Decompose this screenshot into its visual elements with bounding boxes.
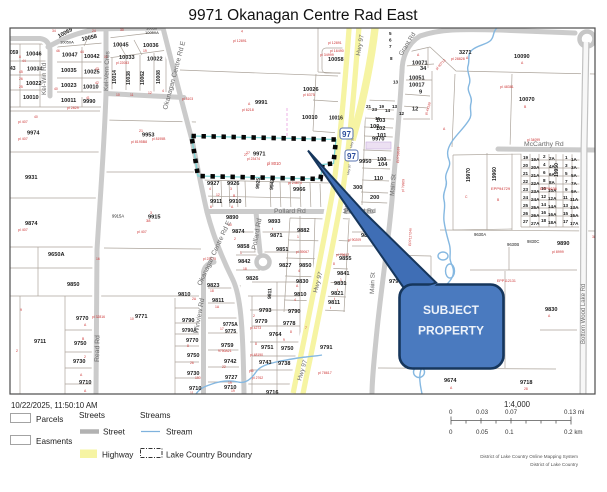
svg-text:10035: 10035 xyxy=(61,68,77,74)
svg-text:10050A: 10050A xyxy=(145,30,159,35)
svg-text:Highway: Highway xyxy=(102,451,134,460)
svg-text:t: t xyxy=(337,288,338,292)
svg-text:10: 10 xyxy=(116,93,120,97)
svg-text:0.2 km: 0.2 km xyxy=(564,429,583,436)
svg-text:7: 7 xyxy=(305,326,307,330)
svg-text:2: 2 xyxy=(84,355,86,359)
svg-text:18A: 18A xyxy=(548,220,557,225)
svg-text:8: 8 xyxy=(187,344,189,348)
svg-text:10010: 10010 xyxy=(83,85,99,91)
svg-text:SUBJECT: SUBJECT xyxy=(423,303,480,317)
svg-text:pl 2829: pl 2829 xyxy=(67,106,79,110)
svg-text:Streams: Streams xyxy=(140,411,170,420)
svg-text:40: 40 xyxy=(54,87,58,91)
svg-text:Kel-Win Rd: Kel-Win Rd xyxy=(41,62,48,95)
svg-text:21A: 21A xyxy=(531,173,540,178)
svg-text:20: 20 xyxy=(523,163,529,168)
svg-text:3: 3 xyxy=(230,187,232,191)
svg-text:26: 26 xyxy=(523,211,529,216)
svg-text:42: 42 xyxy=(95,81,99,85)
svg-text:pl 48190: pl 48190 xyxy=(250,353,263,357)
svg-text:10: 10 xyxy=(130,317,134,321)
svg-text:20A: 20A xyxy=(531,165,540,170)
svg-text:EPP94729: EPP94729 xyxy=(491,186,511,191)
svg-text:pl 407: pl 407 xyxy=(18,228,28,232)
svg-text:pl 6375: pl 6375 xyxy=(303,93,315,97)
svg-text:9971 Okanagan Centre Rad East: 9971 Okanagan Centre Rad East xyxy=(188,7,418,24)
svg-text:23: 23 xyxy=(523,187,529,192)
svg-text:5: 5 xyxy=(565,171,568,176)
svg-text:24: 24 xyxy=(92,29,96,33)
svg-text:12: 12 xyxy=(148,91,152,95)
svg-text:4: 4 xyxy=(162,89,164,93)
svg-text:pl 23474: pl 23474 xyxy=(247,157,260,161)
svg-text:pl 407: pl 407 xyxy=(18,137,28,141)
svg-text:28: 28 xyxy=(524,387,528,391)
svg-text:44: 44 xyxy=(80,50,84,54)
svg-text:pl 407: pl 407 xyxy=(18,120,28,124)
svg-text:9811: 9811 xyxy=(212,298,224,304)
svg-text:25A: 25A xyxy=(531,205,540,210)
svg-text:45: 45 xyxy=(19,70,23,74)
svg-text:19: 19 xyxy=(228,381,232,385)
svg-text:9950: 9950 xyxy=(359,159,371,165)
svg-text:22: 22 xyxy=(523,179,529,184)
svg-text:10047: 10047 xyxy=(62,53,78,59)
svg-text:8: 8 xyxy=(290,330,292,334)
svg-text:pl 34999: pl 34999 xyxy=(320,53,334,57)
svg-text:10010: 10010 xyxy=(302,115,318,121)
svg-text:190: 190 xyxy=(195,376,201,380)
svg-text:41: 41 xyxy=(86,96,90,100)
svg-text:25: 25 xyxy=(19,85,23,89)
svg-text:10010: 10010 xyxy=(23,95,39,101)
svg-text:pl 407: pl 407 xyxy=(137,230,147,234)
svg-text:21: 21 xyxy=(523,171,529,176)
svg-text:19: 19 xyxy=(143,49,147,53)
svg-text:9966: 9966 xyxy=(293,187,305,193)
svg-text:District of Lake Country: District of Lake Country xyxy=(530,462,578,467)
svg-text:9850: 9850 xyxy=(67,282,79,288)
svg-text:10008: 10008 xyxy=(156,70,162,84)
svg-text:2: 2 xyxy=(253,314,255,318)
svg-text:pl 28828: pl 28828 xyxy=(451,57,465,61)
svg-text:9710: 9710 xyxy=(79,380,91,386)
svg-text:15A: 15A xyxy=(570,213,579,218)
svg-text:pl 79617: pl 79617 xyxy=(336,253,349,257)
svg-text:9790: 9790 xyxy=(182,318,194,324)
svg-text:23A: 23A xyxy=(531,189,540,194)
svg-text:9A: 9A xyxy=(571,189,578,194)
svg-text:pl 2762: pl 2762 xyxy=(252,376,263,380)
svg-text:104: 104 xyxy=(378,162,388,168)
svg-text:43: 43 xyxy=(10,66,16,72)
svg-text:17A: 17A xyxy=(570,221,579,226)
svg-text:9882: 9882 xyxy=(297,228,309,234)
svg-text:14A: 14A xyxy=(548,204,557,209)
svg-text:7: 7 xyxy=(389,44,392,49)
svg-text:9942: 9942 xyxy=(269,178,276,190)
svg-text:pl 78617: pl 78617 xyxy=(318,371,332,375)
svg-text:10016: 10016 xyxy=(329,116,343,122)
svg-text:12: 12 xyxy=(412,107,418,113)
svg-text:16: 16 xyxy=(96,257,100,261)
svg-text:10050A: 10050A xyxy=(60,40,74,45)
svg-text:9779: 9779 xyxy=(255,319,267,325)
svg-text:9730: 9730 xyxy=(73,359,85,365)
svg-text:11: 11 xyxy=(130,93,134,97)
svg-text:4: 4 xyxy=(294,298,296,302)
svg-text:10/22/2025, 11:50:10 AM: 10/22/2025, 11:50:10 AM xyxy=(11,401,98,410)
svg-text:EPP59539: EPP59539 xyxy=(396,147,401,163)
svg-text:1:4,000: 1:4,000 xyxy=(504,400,531,409)
svg-text:2: 2 xyxy=(16,349,18,353)
svg-text:pl 79909: pl 79909 xyxy=(401,179,405,192)
svg-text:1: 1 xyxy=(565,155,568,160)
svg-text:2: 2 xyxy=(543,154,546,159)
svg-text:22A: 22A xyxy=(531,181,540,186)
svg-text:43: 43 xyxy=(95,67,99,71)
svg-text:Kel-Vern Cres: Kel-Vern Cres xyxy=(103,51,111,91)
svg-text:9674: 9674 xyxy=(444,378,457,384)
svg-text:9827: 9827 xyxy=(279,263,291,269)
svg-text:Bottom Wood Lake Rd: Bottom Wood Lake Rd xyxy=(581,284,587,344)
svg-text:9874: 9874 xyxy=(232,229,245,235)
svg-text:10011: 10011 xyxy=(61,98,76,104)
svg-text:9931: 9931 xyxy=(25,175,37,181)
svg-text:34: 34 xyxy=(52,29,56,33)
svg-text:pl 8103: pl 8103 xyxy=(182,97,193,101)
svg-text:4: 4 xyxy=(298,269,300,273)
svg-text:pl 8999: pl 8999 xyxy=(552,250,564,254)
svg-text:t: t xyxy=(334,297,335,301)
svg-text:200: 200 xyxy=(370,195,379,201)
svg-text:26: 26 xyxy=(19,77,23,81)
svg-text:16A: 16A xyxy=(548,212,557,217)
svg-text:Lake Country Boundary: Lake Country Boundary xyxy=(166,451,253,460)
svg-text:26A: 26A xyxy=(531,213,540,218)
svg-text:9842: 9842 xyxy=(238,259,250,265)
svg-text:9970: 9970 xyxy=(372,137,384,143)
svg-text:Street: Street xyxy=(103,428,126,437)
svg-text:16: 16 xyxy=(541,210,547,215)
svg-text:9926: 9926 xyxy=(227,181,239,187)
svg-text:3: 3 xyxy=(565,163,568,168)
svg-text:7: 7 xyxy=(565,179,568,184)
svg-text:9630B: 9630B xyxy=(507,242,519,247)
svg-text:10090: 10090 xyxy=(514,54,530,60)
svg-text:9841: 9841 xyxy=(337,271,349,277)
svg-text:19A: 19A xyxy=(531,157,540,162)
svg-text:9915A: 9915A xyxy=(112,214,124,219)
svg-text:4: 4 xyxy=(543,162,546,167)
svg-text:17: 17 xyxy=(563,219,569,224)
svg-text:27A: 27A xyxy=(531,221,540,226)
svg-text:46: 46 xyxy=(56,49,60,53)
svg-text:13: 13 xyxy=(392,104,398,109)
svg-text:pl 8195B: pl 8195B xyxy=(152,137,166,141)
svg-text:9991: 9991 xyxy=(255,100,267,106)
svg-text:pl 39067: pl 39067 xyxy=(296,250,309,254)
svg-text:10022: 10022 xyxy=(26,81,42,87)
svg-text:19970: 19970 xyxy=(466,168,472,182)
svg-text:0.03: 0.03 xyxy=(476,409,489,416)
svg-text:Easments: Easments xyxy=(36,437,72,446)
svg-text:9830C: 9830C xyxy=(527,239,539,244)
svg-text:pl 22083: pl 22083 xyxy=(116,61,129,65)
svg-text:9630A: 9630A xyxy=(474,232,486,237)
svg-text:Streets: Streets xyxy=(79,411,105,420)
svg-text:10070: 10070 xyxy=(519,97,535,103)
svg-text:9743: 9743 xyxy=(259,360,271,366)
svg-text:19: 19 xyxy=(523,155,529,160)
svg-text:9890: 9890 xyxy=(226,215,238,221)
svg-text:McCarthy Rd: McCarthy Rd xyxy=(524,141,564,148)
svg-text:9871: 9871 xyxy=(270,233,282,239)
svg-text:12: 12 xyxy=(541,194,547,199)
svg-text:5A: 5A xyxy=(571,173,578,178)
svg-text:9: 9 xyxy=(283,338,285,342)
svg-text:0.13 mi: 0.13 mi xyxy=(564,409,584,416)
svg-text:PROPERTY: PROPERTY xyxy=(418,324,484,338)
svg-text:0.07: 0.07 xyxy=(505,409,518,416)
svg-text:110: 110 xyxy=(374,176,383,182)
svg-text:pl 8195B8: pl 8195B8 xyxy=(131,140,147,144)
svg-text:8: 8 xyxy=(390,56,393,61)
svg-text:21: 21 xyxy=(366,104,372,109)
svg-text:1: 1 xyxy=(340,278,342,282)
svg-text:17: 17 xyxy=(220,327,224,331)
svg-text:27: 27 xyxy=(244,153,248,157)
svg-text:3A: 3A xyxy=(571,165,578,170)
svg-text:11: 11 xyxy=(563,195,568,200)
svg-text:pl 16490: pl 16490 xyxy=(330,49,344,53)
svg-text:9650A: 9650A xyxy=(48,252,64,258)
svg-text:9791: 9791 xyxy=(320,345,332,351)
svg-text:9790: 9790 xyxy=(288,309,300,315)
svg-text:6: 6 xyxy=(210,205,212,209)
svg-text:12: 12 xyxy=(216,193,220,197)
svg-text:10023: 10023 xyxy=(61,83,77,89)
svg-text:9893: 9893 xyxy=(268,219,280,225)
svg-text:9811: 9811 xyxy=(267,288,273,299)
svg-text:18: 18 xyxy=(210,289,214,293)
svg-text:25: 25 xyxy=(523,203,529,208)
svg-text:15: 15 xyxy=(563,211,569,216)
svg-text:9750: 9750 xyxy=(281,346,293,352)
svg-text:EPP117246: EPP117246 xyxy=(408,228,413,246)
svg-text:2A: 2A xyxy=(549,156,556,161)
svg-text:2A: 2A xyxy=(192,297,197,301)
svg-text:Stream: Stream xyxy=(166,428,193,437)
svg-text:9793: 9793 xyxy=(259,308,271,314)
svg-text:9711: 9711 xyxy=(34,339,46,345)
svg-text:9: 9 xyxy=(419,90,422,96)
svg-text:9718: 9718 xyxy=(520,380,532,386)
svg-text:6: 6 xyxy=(543,170,546,175)
svg-text:9778: 9778 xyxy=(283,321,295,327)
svg-text:40: 40 xyxy=(34,115,38,119)
svg-text:0.05: 0.05 xyxy=(476,429,489,436)
svg-text:9751: 9751 xyxy=(261,345,273,351)
svg-text:13: 13 xyxy=(393,80,399,85)
svg-text:10014: 10014 xyxy=(112,70,118,84)
svg-text:9890: 9890 xyxy=(557,241,569,247)
svg-text:9750: 9750 xyxy=(187,353,199,359)
svg-text:2: 2 xyxy=(234,237,236,241)
svg-text:97: 97 xyxy=(342,130,351,139)
svg-text:0: 0 xyxy=(449,429,453,436)
svg-text:9826: 9826 xyxy=(246,276,258,282)
svg-text:26: 26 xyxy=(190,361,194,365)
svg-text:19960: 19960 xyxy=(492,167,498,181)
svg-text:Read Rd: Read Rd xyxy=(94,335,101,362)
svg-text:9775A: 9775A xyxy=(223,322,238,328)
svg-text:Main St: Main St xyxy=(369,272,377,294)
svg-text:38: 38 xyxy=(146,218,151,223)
svg-text:pl 12891: pl 12891 xyxy=(328,41,342,45)
svg-text:24A: 24A xyxy=(531,197,540,202)
svg-text:1A: 1A xyxy=(215,305,220,309)
svg-text:6: 6 xyxy=(389,38,392,43)
svg-text:9771: 9771 xyxy=(135,314,147,320)
svg-text:9850: 9850 xyxy=(299,263,311,269)
svg-text:pl 90209: pl 90209 xyxy=(348,238,361,242)
svg-text:pl 24874: pl 24874 xyxy=(288,181,302,185)
svg-text:19: 19 xyxy=(231,389,235,393)
svg-text:5: 5 xyxy=(389,31,392,36)
svg-text:97: 97 xyxy=(347,152,356,161)
svg-text:10038: 10038 xyxy=(126,71,132,85)
svg-text:9: 9 xyxy=(565,187,568,192)
svg-text:3: 3 xyxy=(150,211,152,215)
svg-text:13: 13 xyxy=(563,203,569,208)
svg-text:10062: 10062 xyxy=(140,71,146,85)
svg-text:8: 8 xyxy=(19,55,21,59)
svg-text:pl5: pl5 xyxy=(249,369,254,373)
svg-text:pl 8010: pl 8010 xyxy=(267,161,281,166)
svg-text:24: 24 xyxy=(523,195,529,200)
svg-text:9974: 9974 xyxy=(27,131,40,137)
svg-text:t: t xyxy=(330,306,331,310)
svg-text:1: 1 xyxy=(240,251,242,255)
svg-text:10051: 10051 xyxy=(409,76,425,82)
svg-text:14: 14 xyxy=(385,108,391,113)
svg-text:4: 4 xyxy=(241,30,243,34)
svg-text:9858: 9858 xyxy=(237,244,249,250)
svg-text:059: 059 xyxy=(10,50,19,56)
svg-text:0.1: 0.1 xyxy=(505,429,514,436)
svg-text:27: 27 xyxy=(523,219,529,224)
svg-text:4: 4 xyxy=(209,187,211,191)
svg-text:9830: 9830 xyxy=(545,307,557,313)
svg-text:9738: 9738 xyxy=(278,361,290,367)
svg-text:EPP112131: EPP112131 xyxy=(497,279,516,283)
svg-text:14: 14 xyxy=(541,202,547,207)
svg-text:100: 100 xyxy=(370,124,379,130)
svg-text:10046: 10046 xyxy=(26,52,42,58)
svg-text:9810: 9810 xyxy=(178,292,190,298)
svg-text:Parcels: Parcels xyxy=(36,415,63,424)
svg-text:0: 0 xyxy=(449,409,453,416)
svg-text:pl 6218: pl 6218 xyxy=(242,108,254,112)
svg-text:12A: 12A xyxy=(548,196,557,201)
svg-text:9750A21: 9750A21 xyxy=(218,349,232,353)
svg-text:9851: 9851 xyxy=(276,247,288,253)
svg-text:8A: 8A xyxy=(549,180,556,185)
svg-text:12: 12 xyxy=(399,111,405,116)
svg-text:pl 12891: pl 12891 xyxy=(233,39,247,43)
svg-text:8: 8 xyxy=(543,178,546,183)
svg-text:9775: 9775 xyxy=(225,329,236,335)
svg-text:1: 1 xyxy=(297,235,299,239)
svg-text:18: 18 xyxy=(243,267,247,271)
svg-text:300: 300 xyxy=(353,185,362,191)
svg-text:10022: 10022 xyxy=(147,57,163,63)
svg-text:9874: 9874 xyxy=(25,221,38,227)
svg-text:21: 21 xyxy=(139,129,143,133)
svg-text:44: 44 xyxy=(22,59,26,63)
svg-text:8: 8 xyxy=(255,342,257,346)
svg-text:10058: 10058 xyxy=(328,57,344,63)
svg-text:8: 8 xyxy=(333,262,335,266)
svg-text:9: 9 xyxy=(20,308,22,312)
svg-text:EPP9636: EPP9636 xyxy=(540,186,558,191)
svg-text:9764: 9764 xyxy=(269,332,282,338)
svg-text:9770: 9770 xyxy=(76,316,88,322)
svg-text:pl 48381: pl 48381 xyxy=(500,85,514,89)
svg-text:34: 34 xyxy=(420,66,427,72)
svg-text:pl 32816: pl 32816 xyxy=(92,315,105,319)
svg-text:District of Lake Country Onlin: District of Lake Country Online Mapping … xyxy=(480,454,578,459)
svg-text:19: 19 xyxy=(379,104,385,109)
svg-text:Pollard Rd: Pollard Rd xyxy=(274,208,306,215)
svg-text:9750: 9750 xyxy=(74,341,86,347)
svg-text:7A: 7A xyxy=(571,181,578,186)
svg-text:23: 23 xyxy=(372,107,378,112)
svg-text:18: 18 xyxy=(541,218,547,223)
svg-text:10042: 10042 xyxy=(84,54,100,60)
svg-text:pl 4273: pl 4273 xyxy=(250,326,261,330)
svg-text:10017: 10017 xyxy=(409,83,425,89)
svg-text:13A: 13A xyxy=(570,205,579,210)
svg-text:22: 22 xyxy=(222,365,226,369)
svg-text:9742: 9742 xyxy=(224,359,236,365)
svg-text:t: t xyxy=(272,227,273,231)
svg-text:1A: 1A xyxy=(571,157,578,162)
svg-text:19950: 19950 xyxy=(554,163,560,177)
svg-text:10045: 10045 xyxy=(113,43,129,49)
svg-text:11A: 11A xyxy=(570,197,579,202)
